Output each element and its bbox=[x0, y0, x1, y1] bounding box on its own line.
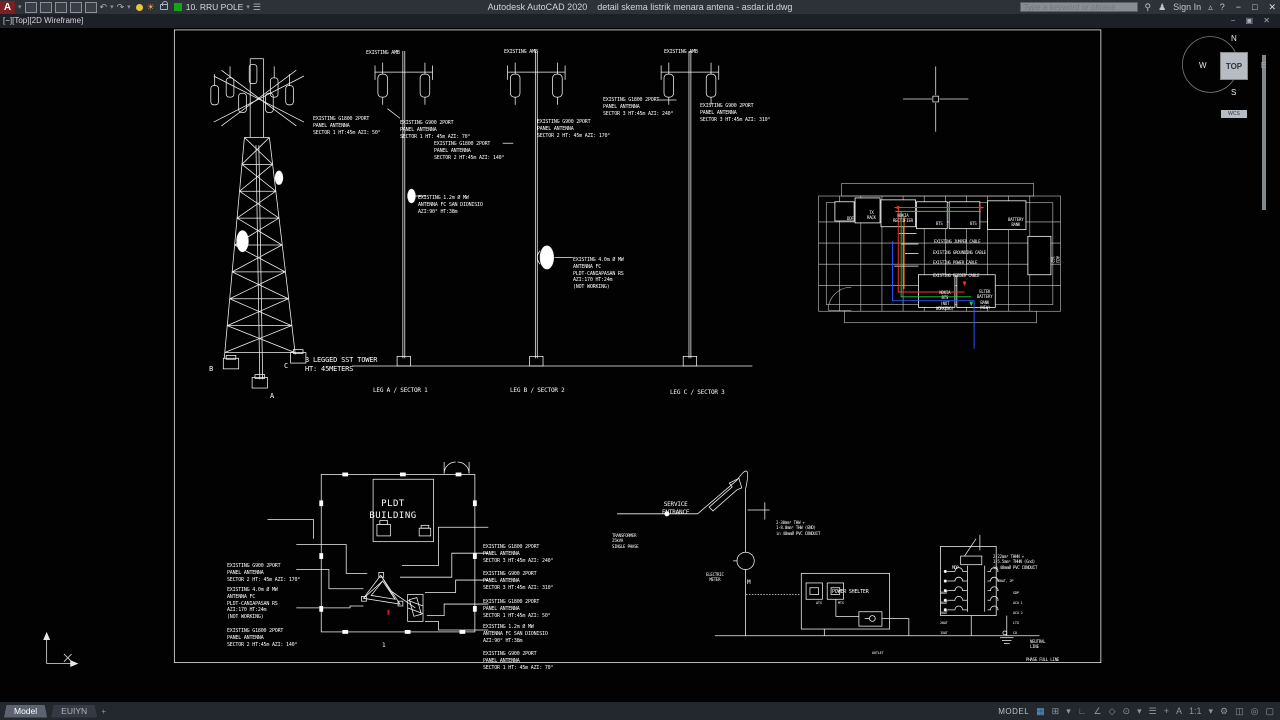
plot-button[interactable] bbox=[85, 2, 97, 13]
label-pole2-g900-s2: EXISTING G900 2PORT PANEL ANTENNA SECTOR… bbox=[537, 119, 610, 139]
search-icon[interactable]: ⚲ bbox=[1145, 2, 1152, 13]
service-cable-spec: 2-30mm² THW + 1-8.0mm² THW (GND) in 40mm… bbox=[776, 520, 820, 536]
snap-toggle[interactable]: ⊞ bbox=[1052, 706, 1060, 717]
save-button[interactable] bbox=[55, 2, 67, 13]
cad-linework bbox=[0, 28, 1280, 702]
user-icon[interactable]: ♟ bbox=[1158, 2, 1166, 13]
meter-m: M bbox=[747, 579, 750, 587]
power-shelter-label: POWER SHELTER bbox=[832, 589, 869, 596]
bplan-right-4: EXISTING 1.2m Ø MW ANTENNA FC SAN DIONIS… bbox=[483, 624, 548, 644]
redo-caret[interactable]: ▾ bbox=[127, 3, 131, 11]
lineweight-toggle[interactable]: ☰ bbox=[1149, 706, 1157, 717]
leg-a-label: LEG A / SECTOR 1 bbox=[373, 387, 428, 395]
layer-dropdown-caret[interactable]: ▾ bbox=[246, 3, 250, 11]
room-battery-bank: BATTERY BANK bbox=[1008, 217, 1023, 228]
room-eltek: ELTEK BATTERY BANK (NEW) bbox=[977, 289, 992, 311]
bplan-left-3: EXISTING G1800 2PORT PANEL ANTENNA SECTO… bbox=[227, 628, 297, 648]
open-file-button[interactable] bbox=[40, 2, 52, 13]
room-tx-rack: TX RACK bbox=[867, 210, 876, 221]
breaker-r-0: SDP bbox=[1013, 591, 1019, 596]
mts-label: MTS bbox=[838, 601, 844, 606]
redo-button[interactable]: ↷ bbox=[117, 2, 125, 13]
model-space-toggle[interactable]: MODEL bbox=[998, 707, 1029, 716]
help-icon[interactable]: ? bbox=[1220, 2, 1225, 12]
leg-b-label: LEG B / SECTOR 2 bbox=[510, 387, 565, 395]
viewcube-west[interactable]: W bbox=[1199, 61, 1207, 70]
document-strip: [−][Top][2D Wireframe] − ▣ ✕ bbox=[0, 14, 1280, 28]
breaker-r-4: CO bbox=[1013, 631, 1017, 636]
breaker-l-1: 30AT bbox=[940, 601, 948, 606]
main-breaker-label: 60AT, 2P bbox=[998, 579, 1013, 584]
room-acu: ACU 1&2 bbox=[1049, 256, 1060, 263]
pole1-header: EXISTING AMB bbox=[366, 50, 400, 57]
bplan-left-1: EXISTING G900 2PORT PANEL ANTENNA SECTOR… bbox=[227, 563, 300, 583]
quick-properties-toggle[interactable]: ◫ bbox=[1235, 706, 1244, 717]
tower-small-dish bbox=[275, 171, 283, 184]
room-bts-1: BTS bbox=[936, 221, 943, 226]
room-feeder-cable: EXISTING FEEDER CABLE bbox=[933, 273, 979, 278]
phase-line-label: PHASE FULL LINE bbox=[1026, 657, 1059, 662]
tab-model[interactable]: Model bbox=[4, 705, 47, 718]
bplan-right-3: EXISTING G1800 2PORT PANEL ANTENNA SECTO… bbox=[483, 599, 550, 619]
breaker-l-4: 15AT bbox=[940, 631, 948, 636]
label-pole1-g1800-s2: EXISTING G1800 2PORT PANEL ANTENNA SECTO… bbox=[434, 141, 504, 161]
pole2-header: EXISTING AMB bbox=[504, 49, 538, 56]
footing-b: B bbox=[209, 365, 213, 374]
service-entrance-label: SERVICE ENTRANCE bbox=[662, 501, 689, 517]
tower-mw-dish bbox=[237, 231, 249, 252]
osnap-toggle[interactable]: ⊙ bbox=[1123, 706, 1131, 717]
app-store-icon[interactable]: ▵ bbox=[1208, 2, 1213, 13]
bplan-right-5: EXISTING G900 2PORT PANEL ANTENNA SECTOR… bbox=[483, 651, 553, 671]
viewcube-north[interactable]: N bbox=[1231, 34, 1237, 43]
mdp-label: MDP bbox=[952, 565, 959, 570]
autocad-logo[interactable]: A bbox=[0, 1, 15, 14]
undo-caret[interactable]: ▾ bbox=[110, 3, 114, 11]
panel-cable-spec: 2-22mm² THHN + 1-5.5mm² THHN (Gnd) in 40… bbox=[993, 554, 1037, 570]
label-mw-12: EXISTING 1.2m Ø MW ANTENNA FC SAN DIONIS… bbox=[418, 195, 483, 215]
label-pole2-g1800-s3: EXISTING G1800 2PORT PANEL ANTENNA SECTO… bbox=[603, 97, 673, 117]
annotation-visibility-icon[interactable]: A bbox=[1176, 706, 1182, 716]
breaker-r-2: ACU 2 bbox=[1013, 611, 1023, 616]
crosshair-cursor bbox=[903, 66, 968, 131]
layer-dropdown[interactable]: 10. RRU POLE bbox=[186, 2, 244, 12]
neutral-line-label: NEUTRAL LINE bbox=[1030, 639, 1045, 650]
transformer-label: TRANSFORMER 25kVA SINGLE PHASE bbox=[612, 533, 639, 549]
pldt-building-label: PLDT BUILDING bbox=[363, 498, 423, 522]
workspace-icon[interactable]: ☰ bbox=[253, 2, 261, 13]
label-pole1-g900-s1: EXISTING G900 2PORT PANEL ANTENNA SECTOR… bbox=[400, 120, 470, 140]
new-file-button[interactable] bbox=[25, 2, 37, 13]
room-rectifier: NOKIA RECTIFIER bbox=[893, 213, 913, 224]
layer-color-swatch[interactable] bbox=[174, 3, 182, 11]
pole3-header: EXISTING AMB bbox=[664, 49, 698, 56]
layer-sun-icon[interactable]: ☀ bbox=[147, 2, 155, 13]
bplan-right-1: EXISTING G1800 2PORT PANEL ANTENNA SECTO… bbox=[483, 544, 553, 564]
building-plan bbox=[267, 462, 488, 634]
breaker-l-0: 30AT bbox=[940, 591, 948, 596]
workspace-gear-icon[interactable]: ⚙ bbox=[1220, 706, 1228, 717]
room-power-cable: EXISTING POWER CABLE bbox=[933, 260, 977, 265]
ortho-toggle[interactable]: ∟ bbox=[1078, 706, 1087, 716]
close-button[interactable]: ✕ bbox=[1268, 2, 1276, 13]
clean-screen-toggle[interactable]: ▢ bbox=[1265, 706, 1274, 717]
grid-toggle[interactable]: ▦ bbox=[1036, 706, 1045, 717]
breaker-r-1: ACU 1 bbox=[1013, 601, 1023, 606]
sign-in-button[interactable]: Sign In bbox=[1173, 2, 1201, 12]
viewcube-south[interactable]: S bbox=[1231, 88, 1236, 97]
dynamic-input-toggle[interactable]: + bbox=[1164, 706, 1169, 716]
pole-elevations bbox=[352, 51, 752, 366]
electrical-schematic bbox=[617, 471, 1039, 643]
room-grounding-cable: EXISTING GROUNDING CABLE bbox=[933, 250, 986, 255]
drawing-canvas[interactable]: EXISTING AMB EXISTING AMB EXISTING AMB E… bbox=[0, 28, 1280, 702]
leg-c-label: LEG C / SECTOR 3 bbox=[670, 389, 725, 397]
label-pole3-g900-s3: EXISTING G900 2PORT PANEL ANTENNA SECTOR… bbox=[700, 103, 770, 123]
annotation-scale-caret[interactable]: ▾ bbox=[1209, 706, 1214, 717]
ucs-icon bbox=[44, 633, 78, 667]
tower-lattice bbox=[211, 59, 306, 388]
title-bar: A ▾ ↶ ▾ ↷ ▾ ☀ 10. RRU POLE ▾ ☰ Autodesk … bbox=[0, 0, 1280, 14]
osnap-caret[interactable]: ▾ bbox=[1137, 706, 1142, 717]
polar-tracking-toggle[interactable]: ∠ bbox=[1094, 706, 1102, 717]
ats-label: ATS bbox=[816, 601, 822, 606]
wcs-dropdown[interactable]: WCS bbox=[1221, 110, 1247, 118]
viewport-controls[interactable]: [−][Top][2D Wireframe] bbox=[3, 16, 83, 25]
snap-caret[interactable]: ▾ bbox=[1066, 706, 1071, 717]
save-as-button[interactable] bbox=[70, 2, 82, 13]
room-nokia-bts: NOKIA BTS (NOT WORKING) bbox=[936, 290, 954, 312]
tab-layout-euiyn[interactable]: EUIYN bbox=[51, 705, 97, 718]
tower-title: 3 LEGGED SST TOWER HT: 45METERS bbox=[305, 356, 377, 375]
annotation-scale[interactable]: 1:1 bbox=[1189, 706, 1202, 716]
outlet-label: OUTLET bbox=[872, 651, 883, 656]
undo-button[interactable]: ↶ bbox=[100, 2, 108, 13]
vertical-scrollbar-thumb[interactable] bbox=[1262, 55, 1266, 210]
label-mw-40: EXISTING 4.0m Ø MW ANTENNA FC PLDT-CANIA… bbox=[573, 257, 624, 291]
footing-a: A bbox=[270, 392, 274, 401]
bplan-right-2: EXISTING G900 2PORT PANEL ANTENNA SECTOR… bbox=[483, 571, 553, 591]
isodraft-toggle[interactable]: ◇ bbox=[1109, 706, 1116, 717]
footing-c: C bbox=[284, 362, 288, 371]
logo-menu-caret[interactable]: ▾ bbox=[18, 3, 22, 11]
document-window-controls[interactable]: − ▣ ✕ bbox=[1231, 16, 1274, 25]
maximize-button[interactable]: □ bbox=[1252, 2, 1257, 12]
layer-lock-icon[interactable] bbox=[160, 4, 168, 10]
breaker-l-2: 20AT bbox=[940, 611, 948, 616]
viewcube-top-face[interactable]: TOP bbox=[1220, 52, 1248, 80]
breaker-l-3: 20AT bbox=[940, 621, 948, 626]
room-ddf: DDF bbox=[847, 216, 854, 221]
electric-meter-label: ELECTRIC METER bbox=[706, 572, 724, 583]
bplan-marker-1: 1 bbox=[382, 642, 385, 650]
label-tower-g1800-s1: EXISTING G1800 2PORT PANEL ANTENNA SECTO… bbox=[313, 116, 380, 136]
search-input[interactable] bbox=[1020, 2, 1138, 12]
minimize-button[interactable]: − bbox=[1236, 2, 1241, 12]
room-jumper-cable: EXISTING JUMPER CABLE bbox=[934, 239, 980, 244]
breaker-r-3: LTG bbox=[1013, 621, 1019, 626]
layer-bulb-icon[interactable] bbox=[136, 4, 143, 11]
add-layout-button[interactable]: + bbox=[101, 706, 106, 716]
isolate-objects-icon[interactable]: ◎ bbox=[1251, 706, 1259, 717]
bplan-left-2: EXISTING 4.0m Ø MW ANTENNA FC PLDT-CANIA… bbox=[227, 587, 278, 621]
room-bts-2: BTS bbox=[970, 221, 977, 226]
status-bar: Model EUIYN + MODEL ▦ ⊞ ▾ ∟ ∠ ◇ ⊙ ▾ ☰ + … bbox=[0, 702, 1280, 720]
